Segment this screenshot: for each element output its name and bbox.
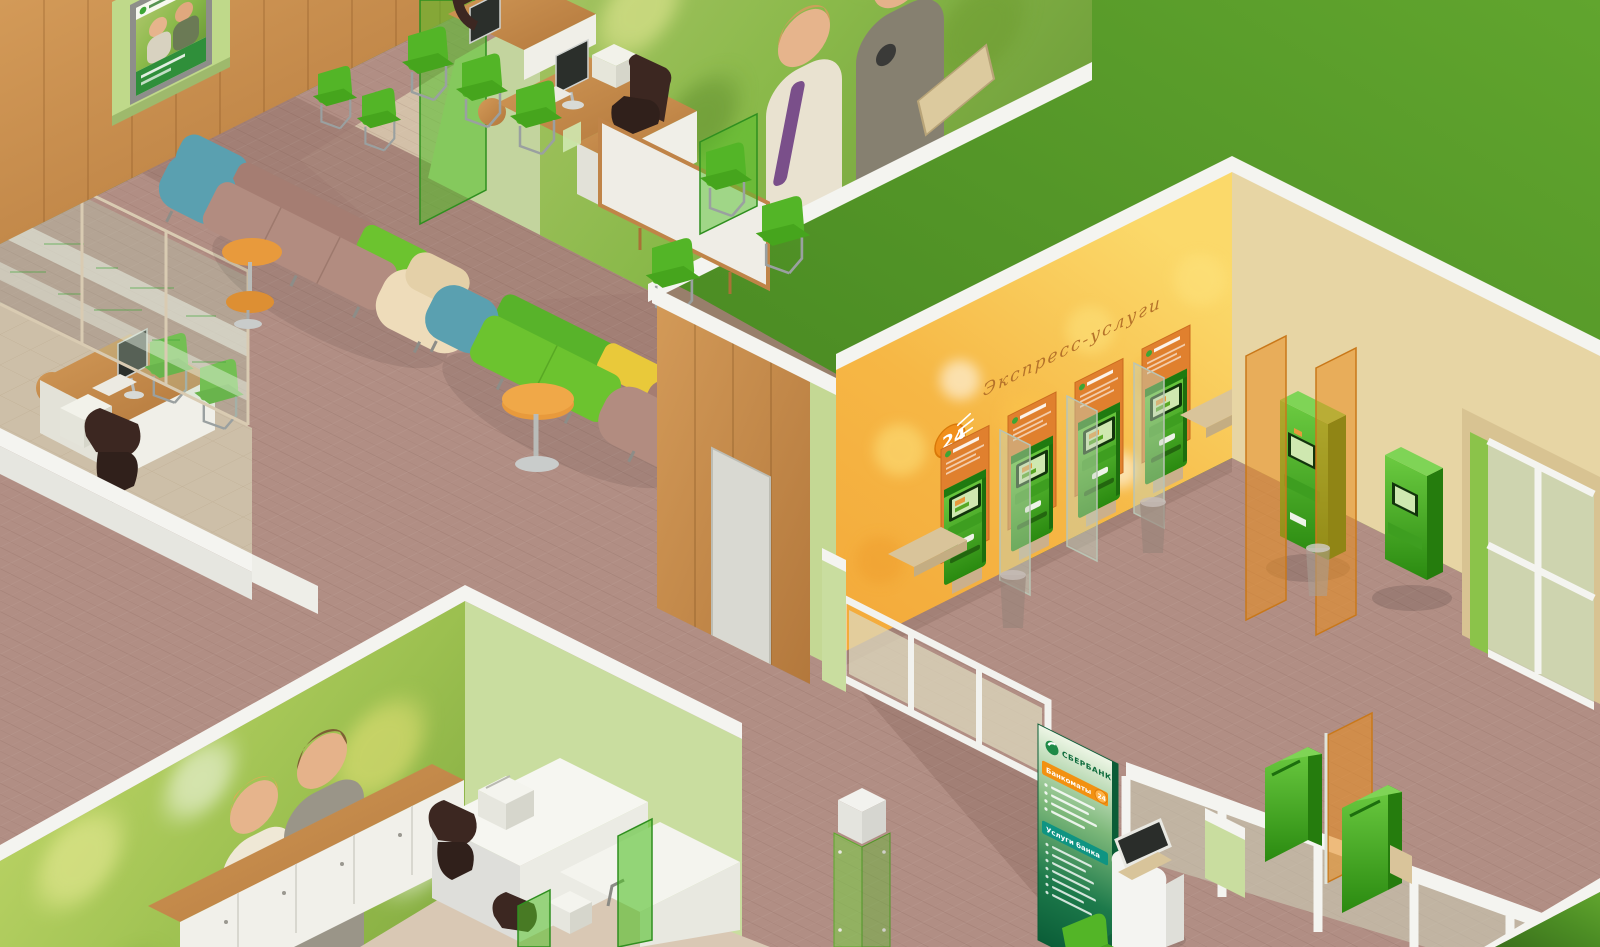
isometric-render: Экспресс-услуги 24 ЧАСА: [0, 0, 1600, 947]
teller-glass-divider: [618, 819, 652, 947]
trash-bin: [1000, 570, 1026, 628]
trash-bin: [1306, 544, 1330, 597]
trash-bin: [1140, 497, 1166, 553]
sage-end-post: [822, 556, 846, 692]
green-glass-column: [834, 788, 890, 947]
bank-branch-scene: Экспресс-услуги 24 ЧАСА: [0, 0, 1600, 947]
door[interactable]: [712, 448, 770, 669]
